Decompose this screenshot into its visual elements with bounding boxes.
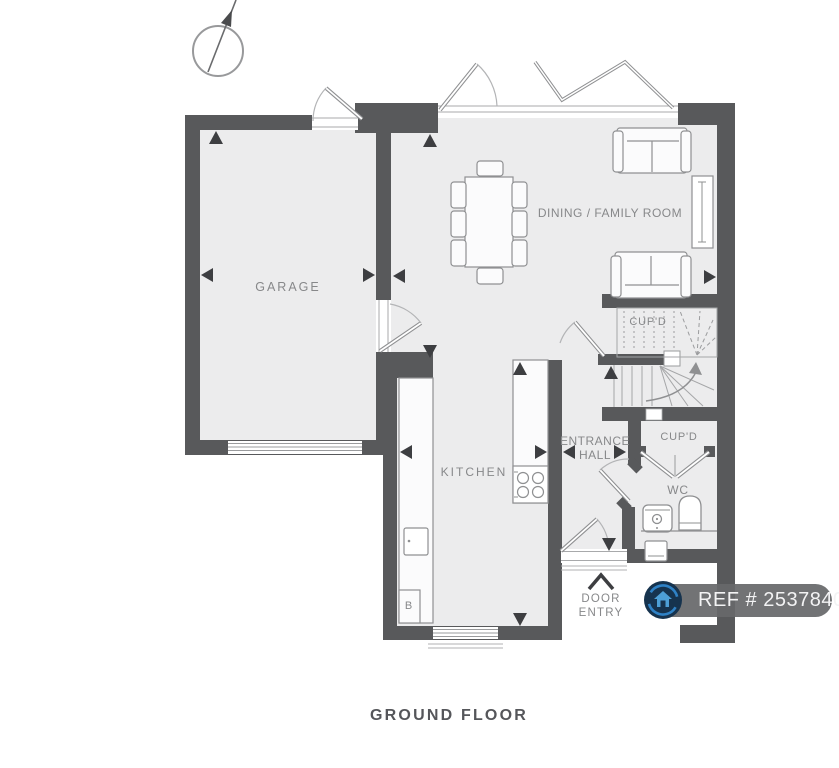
understairs-cupboard-label: CUP'D: [629, 316, 666, 328]
stairs-threshold-wall: [598, 354, 664, 365]
dining-family-room-label: DINING / FAMILY ROOM: [538, 206, 682, 220]
garage-right-wall-upper: [376, 115, 391, 300]
kitchen-label: KITCHEN: [441, 465, 508, 479]
dining-chair: [512, 182, 527, 208]
dining-chair: [451, 211, 466, 237]
stairs-newel-box: [664, 351, 680, 366]
dining-chair: [477, 268, 503, 284]
wall-notch: [646, 409, 662, 420]
dining-chair: [477, 161, 503, 176]
dining-chair: [451, 240, 466, 266]
wc-label: WC: [667, 483, 689, 497]
sofa-top: [613, 128, 691, 173]
radiator: [692, 176, 713, 248]
kitchen-appliance: [404, 528, 428, 555]
kitchen-counter-left: [399, 378, 433, 623]
dining-chair: [512, 240, 527, 266]
hall-wc-wall-lower: [622, 507, 635, 550]
dining-table: [465, 177, 513, 267]
door-entry-arrow-icon: [589, 575, 613, 589]
wc-bottom-wall: [627, 549, 735, 563]
house-logo-icon: [643, 580, 683, 620]
toilet: [679, 496, 701, 530]
bifold-door-panels: [535, 62, 673, 108]
floor-title: GROUND FLOOR: [370, 707, 528, 725]
garage-left-wall: [185, 115, 200, 455]
entrance-hall-label-line2: HALL: [560, 448, 630, 462]
floorplan-page: GARAGE DINING / FAMILY ROOM KITCHEN ENTR…: [0, 0, 839, 768]
dining-chair: [512, 211, 527, 237]
bifold-door-opening: [438, 103, 678, 118]
meter-box: [645, 541, 667, 561]
garage-side-door-opening: [312, 115, 358, 130]
hall-cupboard-label: CUP'D: [660, 431, 697, 443]
garage-label: GARAGE: [255, 280, 321, 294]
kitchen-right-wall: [548, 360, 562, 640]
entrance-hall-label-line1: ENTRANCE: [560, 434, 630, 448]
entrance-hall-label: ENTRANCE HALL: [560, 434, 630, 462]
sofa-bottom: [611, 252, 691, 298]
garage-top-wall: [185, 115, 312, 130]
door-entry-label: DOOR ENTRY: [579, 592, 624, 620]
boiler-label: B: [405, 600, 413, 612]
hob: [513, 466, 548, 503]
door-entry-line1: DOOR: [579, 592, 624, 606]
bifold-door-swing: [477, 64, 497, 106]
wash-basin: [643, 505, 672, 532]
floorplan-drawing: [0, 0, 839, 768]
bottom-right-wall-stub: [680, 625, 735, 643]
garage-right-wall-lower: [376, 352, 391, 455]
dining-chair: [451, 182, 466, 208]
junction-wall-block: [355, 103, 438, 133]
door-entry-line2: ENTRY: [579, 606, 624, 620]
north-arrow-icon: [193, 0, 243, 76]
